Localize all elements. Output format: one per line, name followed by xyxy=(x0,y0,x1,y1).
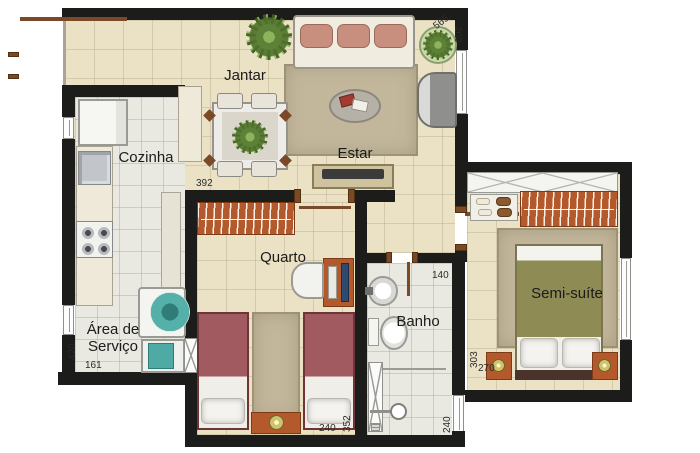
room-label-quarto: Quarto xyxy=(248,250,318,267)
door-jamb xyxy=(348,189,355,203)
floor-drain-icon xyxy=(371,423,380,432)
room-label-semi-suite: Semi-suíte xyxy=(512,286,622,303)
fridge xyxy=(78,99,128,146)
bed-pillow xyxy=(520,338,558,368)
wall xyxy=(185,435,367,447)
floor-plan: Jantar Estar Cozinha Quarto Banho Semi-s… xyxy=(0,0,700,453)
shoes-icon xyxy=(478,209,492,216)
wall xyxy=(465,390,632,402)
bed-headboard xyxy=(515,370,603,380)
room-label-banho: Banho xyxy=(386,314,450,331)
dimension-label: 161 xyxy=(85,361,102,371)
room-label-cozinha: Cozinha xyxy=(108,150,184,167)
door-jamb xyxy=(8,52,19,57)
sofa-cushion xyxy=(337,24,370,48)
shoes-icon xyxy=(496,197,511,206)
faucet-icon xyxy=(365,287,373,295)
dimension-label: 140 xyxy=(432,271,449,281)
door-jamb xyxy=(8,74,19,79)
entrance-door-leaf xyxy=(20,17,127,21)
stove xyxy=(76,221,113,258)
dimension-label: 392 xyxy=(196,179,213,189)
dimension-label: 420 xyxy=(68,330,79,360)
dining-chair xyxy=(217,161,243,177)
dining-chair xyxy=(217,93,243,109)
washing-machine-door xyxy=(150,292,190,332)
sofa-cushion xyxy=(374,24,407,48)
balcony-edge-line xyxy=(63,20,66,86)
dimension-label: 240 xyxy=(443,403,454,433)
room-label-area-servico-1: Área de xyxy=(84,322,142,339)
room-label-jantar: Jantar xyxy=(210,68,280,85)
window xyxy=(621,258,631,340)
toilet-tank xyxy=(368,318,379,346)
room-label-area-servico-2: Serviço xyxy=(82,339,144,356)
dining-chair xyxy=(251,93,277,109)
wall xyxy=(413,253,465,263)
dimension-label: 240 xyxy=(319,424,336,434)
wall xyxy=(62,85,75,117)
room-label-estar: Estar xyxy=(325,146,385,163)
bed-pillow xyxy=(201,398,245,424)
wardrobe-sliding-doors xyxy=(467,172,618,193)
door-jamb xyxy=(455,244,467,251)
kitchen-sink xyxy=(78,151,111,185)
plant-icon xyxy=(232,120,268,154)
lamp-icon xyxy=(598,359,611,372)
armchair xyxy=(417,72,457,128)
plant-icon xyxy=(246,14,292,60)
dining-chair xyxy=(251,161,277,177)
bedroom-runner-rug xyxy=(252,312,300,420)
shower-head-icon xyxy=(390,403,407,420)
window xyxy=(456,50,467,114)
wall xyxy=(58,372,197,385)
tv xyxy=(322,169,384,179)
wall xyxy=(620,162,632,258)
shoes-icon xyxy=(476,198,490,205)
door-jamb xyxy=(294,189,301,203)
keyboard xyxy=(328,266,337,299)
window xyxy=(63,117,74,139)
shoes-icon xyxy=(497,208,512,217)
bedroom-door-leaf xyxy=(299,206,351,209)
wall xyxy=(62,139,75,305)
dimension-label: 270 xyxy=(478,364,495,374)
computer-monitor xyxy=(341,263,349,302)
wall xyxy=(355,190,367,447)
service-window xyxy=(184,338,198,373)
door-jamb xyxy=(412,252,418,263)
wall xyxy=(62,85,185,97)
bathroom-door-leaf xyxy=(407,262,410,296)
towel-rail xyxy=(380,368,446,370)
plant-icon xyxy=(423,30,453,60)
dimension-label: 352 xyxy=(343,402,354,432)
laundry-tank-basin xyxy=(148,343,174,369)
lamp-icon xyxy=(269,415,284,430)
wardrobe xyxy=(197,202,295,235)
wall xyxy=(358,435,465,447)
desk-chair xyxy=(291,262,324,299)
wall xyxy=(452,262,465,395)
wardrobe-hanging-rail xyxy=(520,191,618,227)
shower-door xyxy=(368,362,383,432)
sofa-cushion xyxy=(300,24,333,48)
window xyxy=(453,395,464,433)
dimension-label: 260 xyxy=(451,26,462,56)
door-jamb xyxy=(455,206,467,213)
wall xyxy=(185,190,300,202)
door-jamb xyxy=(386,252,392,263)
